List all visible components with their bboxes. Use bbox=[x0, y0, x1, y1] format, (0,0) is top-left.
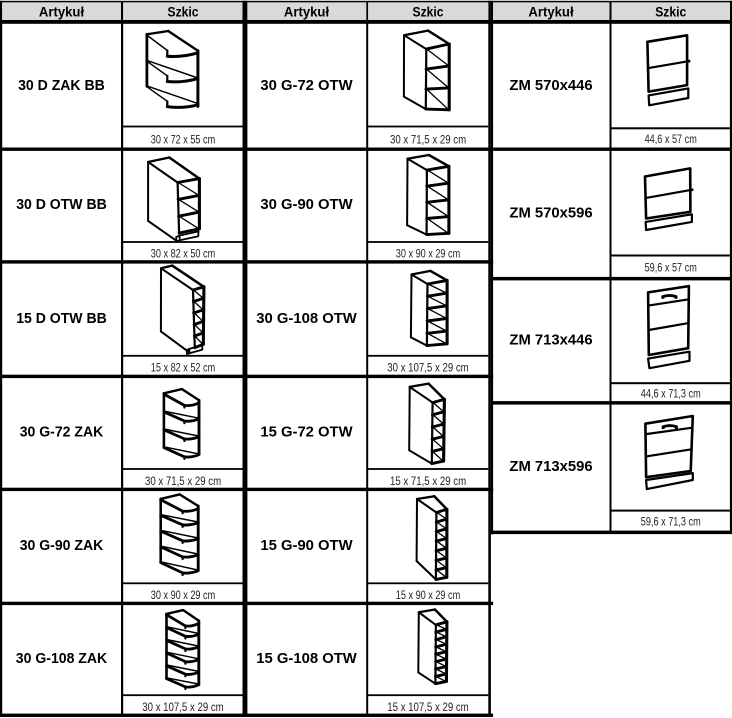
svg-text:Szkic: Szkic bbox=[168, 4, 199, 19]
svg-text:Artykuł: Artykuł bbox=[39, 4, 84, 19]
svg-text:30 D OTW BB: 30 D OTW BB bbox=[16, 196, 107, 213]
svg-text:30 x 107,5 x 29 cm: 30 x 107,5 x 29 cm bbox=[387, 361, 468, 375]
svg-text:Artykuł: Artykuł bbox=[284, 4, 329, 19]
svg-text:30 D ZAK BB: 30 D ZAK BB bbox=[18, 77, 105, 94]
svg-text:30 x 90 x 29 cm: 30 x 90 x 29 cm bbox=[396, 247, 460, 261]
svg-text:ZM 713x446: ZM 713x446 bbox=[509, 331, 592, 348]
svg-text:Szkic: Szkic bbox=[655, 4, 686, 19]
svg-text:30 G-108 ZAK: 30 G-108 ZAK bbox=[16, 650, 107, 667]
svg-text:59,6 x 71,3 cm: 59,6 x 71,3 cm bbox=[641, 515, 701, 529]
svg-text:30 x 82 x 50 cm: 30 x 82 x 50 cm bbox=[151, 247, 215, 261]
svg-text:15 x 90 x 29 cm: 15 x 90 x 29 cm bbox=[396, 588, 460, 602]
svg-text:15 D OTW BB: 15 D OTW BB bbox=[16, 310, 107, 327]
svg-text:15 G-90 OTW: 15 G-90 OTW bbox=[260, 537, 353, 554]
svg-text:30 G-108 OTW: 30 G-108 OTW bbox=[256, 310, 357, 327]
svg-text:30 G-90 ZAK: 30 G-90 ZAK bbox=[20, 537, 104, 554]
svg-text:ZM 570x596: ZM 570x596 bbox=[509, 205, 592, 222]
svg-text:15 G-72 OTW: 15 G-72 OTW bbox=[260, 424, 353, 441]
svg-text:Szkic: Szkic bbox=[413, 4, 444, 19]
svg-text:Artykuł: Artykuł bbox=[528, 4, 573, 19]
svg-text:30 x 90 x 29 cm: 30 x 90 x 29 cm bbox=[151, 588, 215, 602]
svg-text:ZM 570x446: ZM 570x446 bbox=[509, 77, 592, 94]
svg-text:59,6 x 57 cm: 59,6 x 57 cm bbox=[645, 260, 697, 274]
svg-text:30 x 71,5 x 29 cm: 30 x 71,5 x 29 cm bbox=[145, 474, 221, 488]
svg-text:15 x 107,5 x 29 cm: 15 x 107,5 x 29 cm bbox=[387, 700, 468, 714]
svg-text:30 x 107,5 x 29 cm: 30 x 107,5 x 29 cm bbox=[142, 700, 223, 714]
svg-text:30 G-72 ZAK: 30 G-72 ZAK bbox=[20, 424, 104, 441]
svg-text:ZM 713x596: ZM 713x596 bbox=[509, 458, 592, 475]
svg-text:44,6 x 71,3 cm: 44,6 x 71,3 cm bbox=[641, 386, 701, 400]
svg-text:15 x 82 x 52 cm: 15 x 82 x 52 cm bbox=[151, 361, 215, 375]
svg-text:15 x 71,5 x 29 cm: 15 x 71,5 x 29 cm bbox=[390, 474, 466, 488]
svg-text:30 G-90 OTW: 30 G-90 OTW bbox=[260, 196, 353, 213]
svg-text:44,6 x 57 cm: 44,6 x 57 cm bbox=[645, 132, 697, 146]
svg-text:30 G-72 OTW: 30 G-72 OTW bbox=[260, 77, 353, 94]
svg-text:30 x 71,5 x 29 cm: 30 x 71,5 x 29 cm bbox=[390, 133, 466, 147]
svg-text:15 G-108 OTW: 15 G-108 OTW bbox=[256, 650, 357, 667]
svg-text:30 x 72 x 55 cm: 30 x 72 x 55 cm bbox=[151, 133, 215, 147]
